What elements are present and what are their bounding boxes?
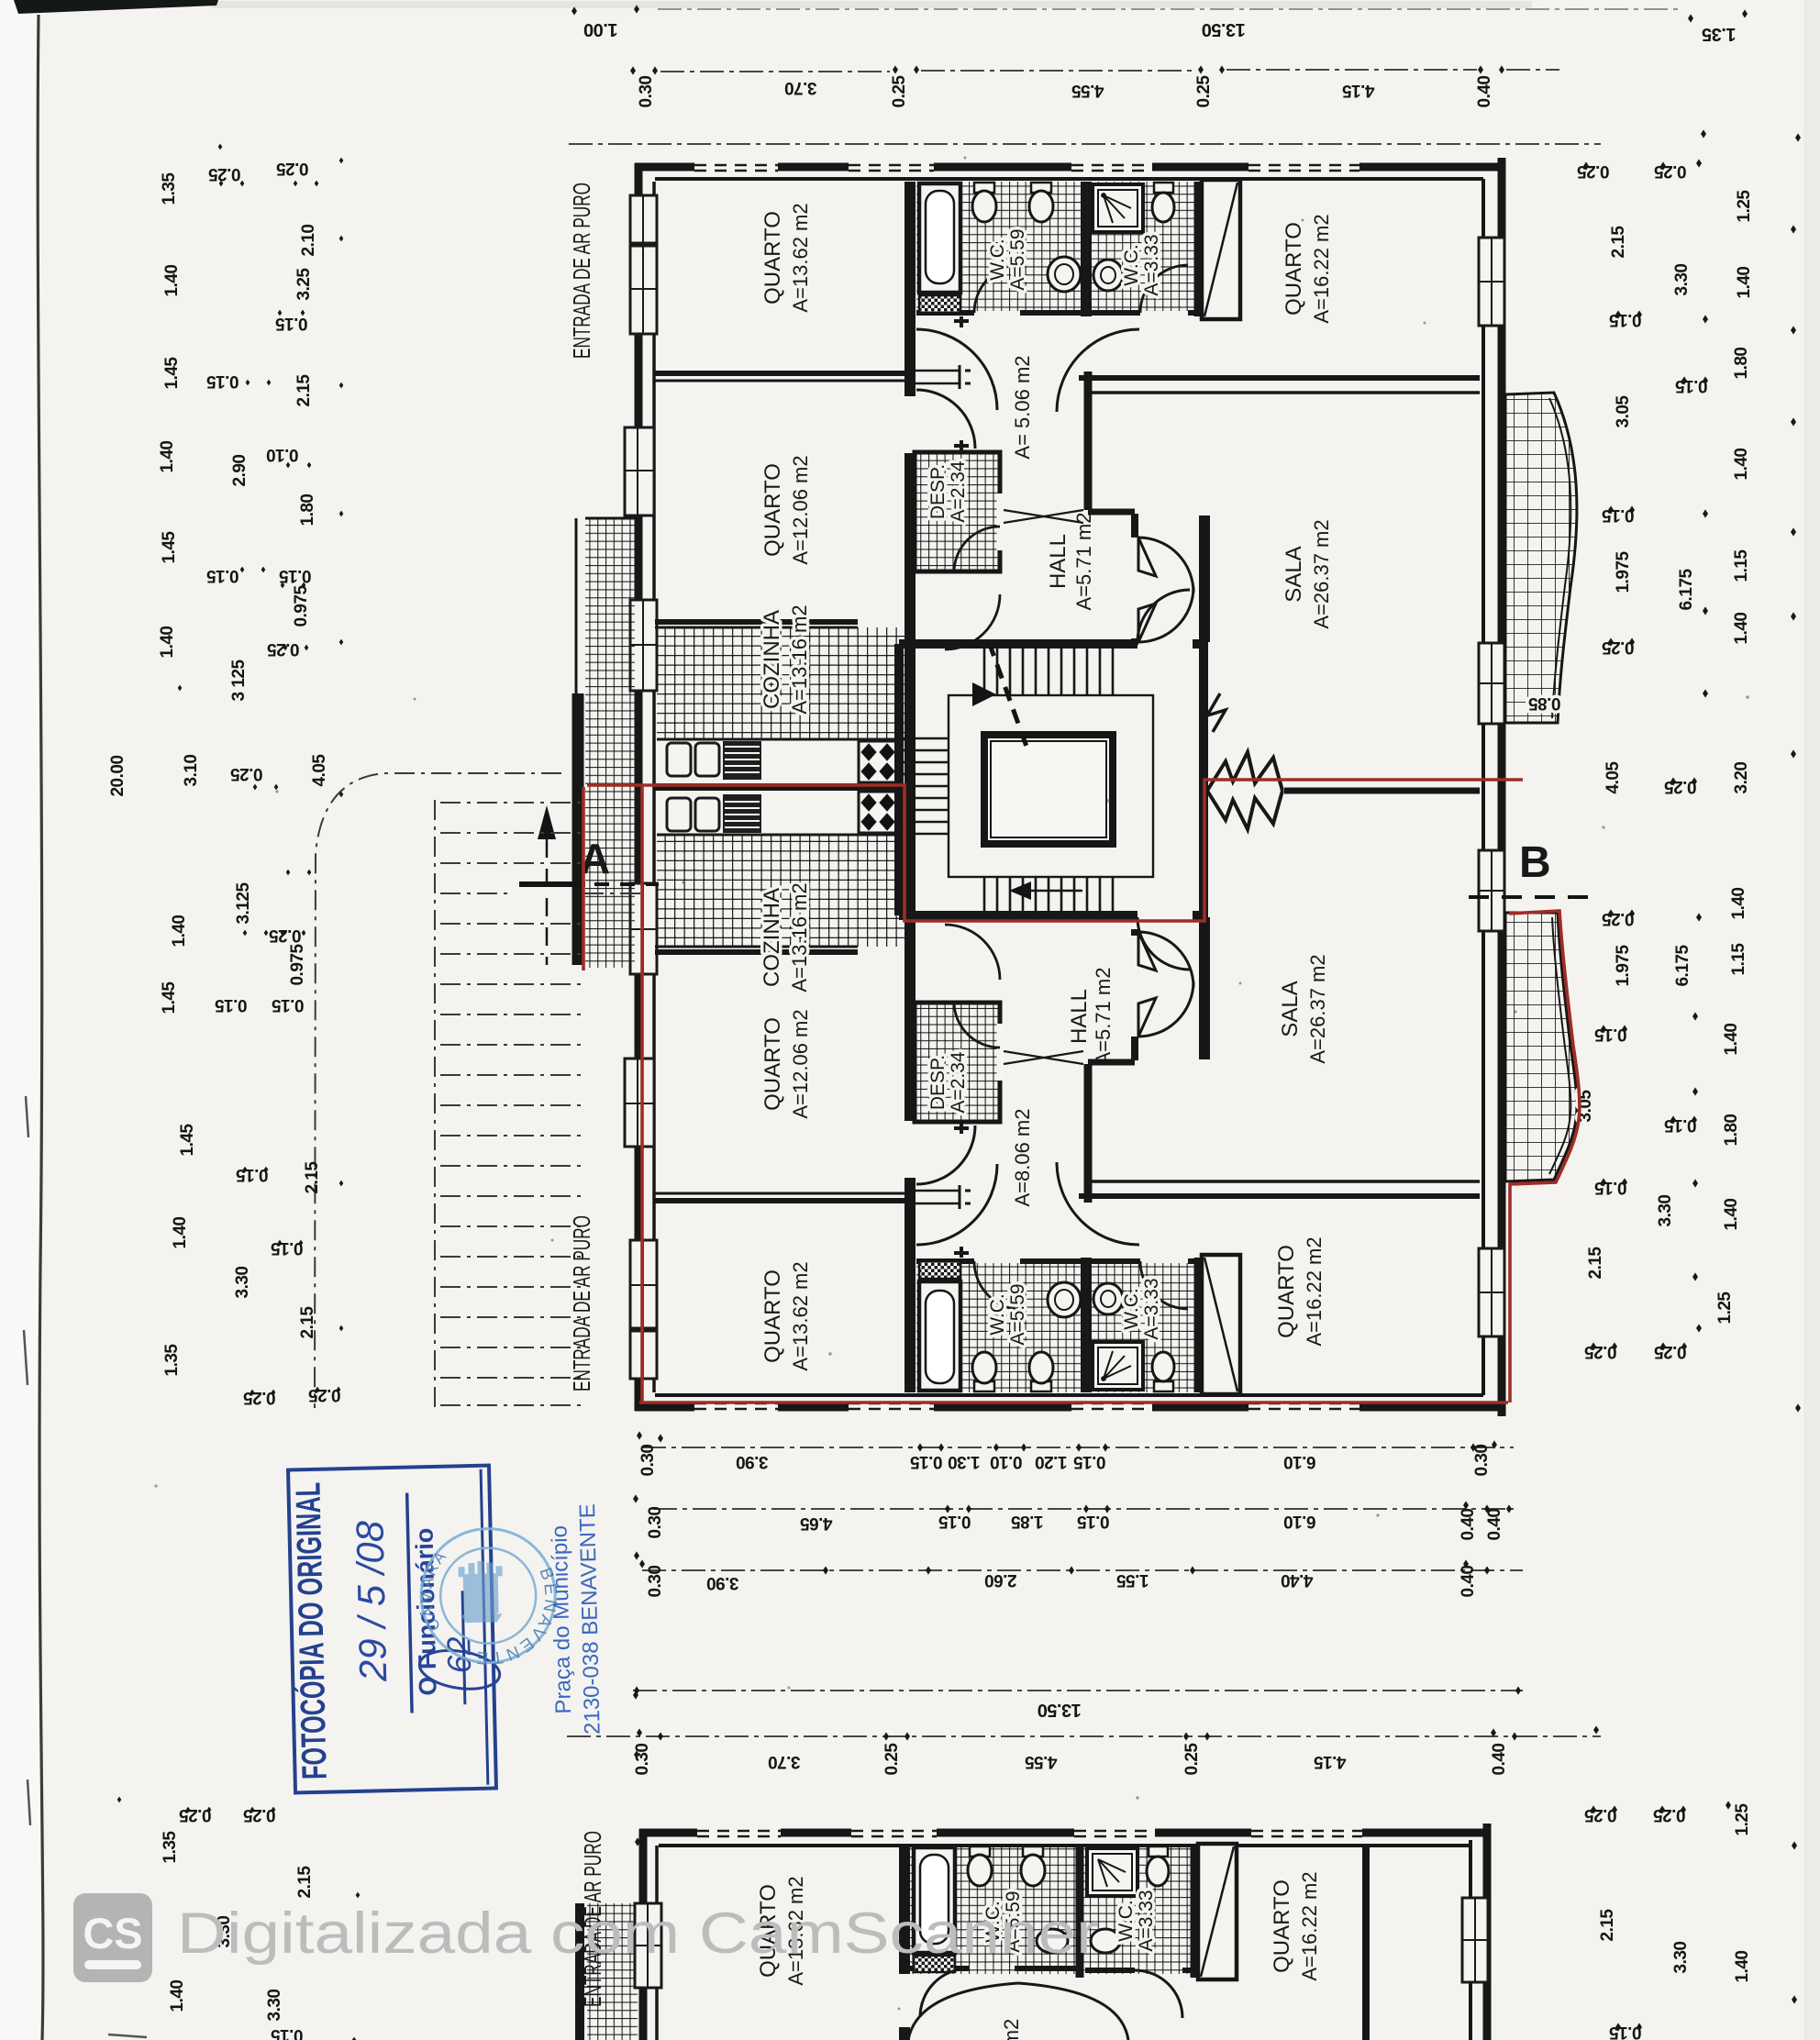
svg-text:Digitalizada com CamScanner: Digitalizada com CamScanner (177, 1901, 1099, 1966)
svg-text:0.15: 0.15 (272, 995, 305, 1014)
svg-text:3.125: 3.125 (234, 882, 253, 925)
svg-text:1.45: 1.45 (160, 531, 179, 564)
svg-text:1.35: 1.35 (162, 1344, 182, 1377)
svg-text:2.90: 2.90 (230, 455, 250, 487)
svg-text:QUARTO: QUARTO (1270, 1879, 1294, 1973)
svg-text:0.15: 0.15 (1594, 1178, 1627, 1197)
svg-text:1.40: 1.40 (171, 1217, 190, 1249)
svg-text:1.40: 1.40 (1733, 1951, 1752, 1983)
svg-text:SALA: SALA (1278, 981, 1303, 1037)
svg-text:1.40: 1.40 (1732, 449, 1751, 481)
svg-text:0.25: 0.25 (1182, 1743, 1202, 1776)
svg-text:A=26.37 m2: A=26.37 m2 (1306, 954, 1329, 1063)
svg-text:3.30: 3.30 (233, 1267, 252, 1299)
svg-text:0.15: 0.15 (1609, 2023, 1642, 2040)
svg-text:1.45: 1.45 (160, 981, 179, 1014)
svg-text:1.975: 1.975 (1614, 945, 1633, 987)
svg-text:0.15: 0.15 (215, 995, 248, 1014)
svg-text:0.15: 0.15 (236, 1165, 269, 1184)
svg-text:0.85: 0.85 (1528, 693, 1561, 713)
svg-text:1.35: 1.35 (1702, 24, 1736, 44)
svg-text:0.15: 0.15 (1073, 1452, 1106, 1471)
svg-text:1.20: 1.20 (1036, 1452, 1068, 1471)
svg-text:4.15: 4.15 (1342, 81, 1375, 100)
svg-text:1.80: 1.80 (298, 494, 317, 527)
svg-text:3.30: 3.30 (1656, 1195, 1675, 1227)
svg-text:2130-038 BENAVENTE: 2130-038 BENAVENTE (575, 1503, 605, 1735)
svg-text:0.25: 0.25 (1602, 637, 1635, 657)
svg-text:CS: CS (83, 1909, 142, 1957)
svg-text:13.50: 13.50 (1202, 19, 1246, 39)
svg-text:2.10: 2.10 (299, 225, 318, 257)
svg-text:2.15: 2.15 (298, 1306, 317, 1339)
svg-text:0.40: 0.40 (1459, 1566, 1478, 1598)
svg-text:1.40: 1.40 (1735, 267, 1754, 299)
svg-text:6.175: 6.175 (1677, 569, 1696, 611)
svg-text:QUARTO: QUARTO (1274, 1245, 1299, 1338)
svg-text:1.30: 1.30 (949, 1452, 981, 1471)
svg-text:A=16.22 m2: A=16.22 m2 (1303, 1236, 1326, 1346)
svg-text:A=5.71 m2: A=5.71 m2 (1072, 512, 1095, 610)
svg-text:0.25: 0.25 (267, 639, 300, 659)
svg-text:0.15: 0.15 (938, 1512, 971, 1531)
svg-text:QUARTO: QUARTO (760, 1017, 785, 1111)
svg-text:1.15: 1.15 (1732, 549, 1751, 582)
svg-text:0.975: 0.975 (292, 585, 311, 627)
svg-text:1.35: 1.35 (161, 1831, 180, 1864)
svg-text:29 / 5 /08: 29 / 5 /08 (348, 1520, 394, 1683)
svg-text:0.25: 0.25 (1602, 909, 1635, 928)
svg-text:1.55: 1.55 (1116, 1570, 1149, 1590)
svg-text:1.40: 1.40 (168, 1980, 187, 2012)
svg-text:W.C.: W.C. (987, 1293, 1008, 1336)
svg-text:QUARTO: QUARTO (1282, 222, 1306, 316)
svg-text:0.10: 0.10 (991, 1452, 1023, 1471)
svg-text:1.40: 1.40 (158, 626, 177, 659)
svg-text:1.45: 1.45 (162, 357, 182, 390)
svg-text:1.15: 1.15 (1729, 943, 1748, 976)
svg-text:COZINHA: COZINHA (760, 888, 784, 987)
svg-text:A=5.59: A=5.59 (1007, 1283, 1028, 1345)
svg-text:3.90: 3.90 (707, 1573, 739, 1592)
svg-text:0.25: 0.25 (1194, 75, 1214, 108)
svg-text:ENTRADA DE AR PURO: ENTRADA DE AR PURO (568, 183, 595, 359)
svg-text:2.15: 2.15 (1598, 1909, 1617, 1942)
svg-text:1.25: 1.25 (1715, 1292, 1735, 1325)
svg-text:0.30: 0.30 (646, 1566, 665, 1598)
svg-text:0.25: 0.25 (179, 1805, 212, 1824)
svg-text:Praça do Município: Praça do Município (547, 1525, 576, 1714)
svg-text:0.15: 0.15 (1664, 1115, 1697, 1135)
svg-text:3 125: 3 125 (229, 660, 249, 702)
svg-text:3.25: 3.25 (294, 268, 314, 301)
svg-text:4.55: 4.55 (1071, 81, 1104, 100)
svg-text:0.30: 0.30 (1472, 1445, 1492, 1477)
svg-text:0.25: 0.25 (1664, 777, 1697, 796)
svg-text:0.25: 0.25 (243, 1388, 276, 1407)
svg-text:0.30: 0.30 (637, 76, 656, 108)
svg-text:0.15: 0.15 (1609, 310, 1642, 329)
svg-text:6.175: 6.175 (1673, 945, 1692, 987)
svg-text:0.40: 0.40 (1485, 1509, 1504, 1541)
svg-text:0.30: 0.30 (646, 1507, 665, 1539)
svg-text:0.15: 0.15 (279, 566, 312, 585)
svg-text:4.05: 4.05 (310, 754, 329, 787)
svg-text:A=16.22 m2: A=16.22 m2 (1298, 1871, 1321, 1980)
svg-text:0.25: 0.25 (882, 1743, 902, 1776)
svg-text:3.90: 3.90 (737, 1452, 769, 1471)
svg-text:3.30: 3.30 (1672, 264, 1692, 296)
svg-text:0.975: 0.975 (288, 944, 307, 986)
svg-text:1.80: 1.80 (1722, 1114, 1741, 1147)
svg-text:0.25: 0.25 (230, 764, 263, 783)
svg-text:A=8.06 m2: A=8.06 m2 (1011, 1108, 1034, 1206)
svg-text:A=13.16 m2: A=13.16 m2 (788, 604, 811, 714)
svg-text:3.20: 3.20 (1732, 762, 1751, 794)
svg-text:A=13.62 m2: A=13.62 m2 (789, 1261, 812, 1370)
svg-text:1.45: 1.45 (178, 1124, 197, 1157)
svg-text:1.975: 1.975 (1614, 551, 1633, 593)
svg-text:0.15: 0.15 (206, 371, 239, 391)
svg-text:1.40: 1.40 (170, 915, 189, 948)
svg-text:4.15: 4.15 (1314, 1752, 1347, 1771)
svg-text:W.C.: W.C. (1115, 1900, 1137, 1942)
svg-text:A=12.06 m2: A=12.06 m2 (789, 1009, 812, 1118)
svg-text:0.25: 0.25 (276, 159, 309, 178)
svg-text:1.40: 1.40 (1729, 888, 1748, 920)
svg-text:m2: m2 (1000, 2019, 1023, 2040)
svg-text:0.15: 0.15 (275, 314, 308, 333)
svg-text:0.15: 0.15 (271, 2025, 304, 2040)
svg-text:A=3.33: A=3.33 (1136, 1890, 1157, 1951)
svg-text:A=5.71 m2: A=5.71 m2 (1092, 967, 1115, 1065)
svg-text:1.40: 1.40 (162, 265, 182, 297)
svg-text:2.60: 2.60 (985, 1570, 1017, 1590)
svg-text:QUARTO: QUARTO (760, 463, 785, 557)
svg-text:0.15: 0.15 (1675, 376, 1708, 395)
svg-text:0.30: 0.30 (638, 1445, 658, 1477)
svg-text:0.25: 0.25 (1653, 1805, 1686, 1824)
svg-text:0.15: 0.15 (271, 1238, 304, 1258)
svg-text:A=5.59: A=5.59 (1007, 228, 1028, 290)
svg-text:3.30: 3.30 (1671, 1942, 1691, 1974)
svg-text:3.70: 3.70 (785, 78, 817, 97)
svg-text:1.25: 1.25 (1735, 190, 1754, 223)
svg-text:3.30: 3.30 (265, 1990, 284, 2022)
svg-text:DESP.: DESP. (927, 464, 949, 519)
svg-text:0.25: 0.25 (1584, 1805, 1617, 1824)
svg-text:6.10: 6.10 (1284, 1452, 1316, 1471)
svg-text:0.25: 0.25 (1654, 161, 1687, 181)
svg-text:A=2.34: A=2.34 (948, 1051, 969, 1113)
svg-text:1.00: 1.00 (583, 19, 617, 39)
svg-text:A=13.62 m2: A=13.62 m2 (789, 203, 812, 312)
svg-text:1.40: 1.40 (1732, 613, 1751, 645)
svg-text:0.40: 0.40 (1475, 76, 1494, 108)
svg-text:0.25: 0.25 (208, 164, 241, 183)
svg-text:1.80: 1.80 (1732, 348, 1751, 380)
svg-text:QUARTO: QUARTO (760, 1269, 785, 1363)
svg-text:1.40: 1.40 (158, 441, 177, 473)
svg-text:1.25: 1.25 (1733, 1803, 1752, 1836)
svg-text:2.15: 2.15 (1609, 226, 1628, 259)
svg-text:QUARTO: QUARTO (760, 211, 785, 305)
svg-text:0.15: 0.15 (206, 566, 239, 585)
svg-text:2.15: 2.15 (295, 1866, 315, 1899)
svg-text:1.85: 1.85 (1011, 1512, 1044, 1531)
svg-text:0.15: 0.15 (1602, 505, 1635, 525)
svg-text:A=13.16 m2: A=13.16 m2 (788, 882, 811, 992)
svg-text:0.25: 0.25 (308, 1385, 341, 1404)
svg-text:0.25: 0.25 (243, 1805, 276, 1824)
svg-text:1.35: 1.35 (160, 172, 179, 205)
svg-text:6.10: 6.10 (1284, 1512, 1316, 1531)
svg-text:0.25: 0.25 (1577, 161, 1610, 181)
svg-text:A=12.06 m2: A=12.06 m2 (789, 455, 812, 564)
svg-text:SALA: SALA (1282, 546, 1306, 602)
svg-text:4.65: 4.65 (800, 1513, 833, 1533)
svg-text:W.C.: W.C. (987, 238, 1008, 281)
svg-text:0.15: 0.15 (1594, 1025, 1627, 1044)
svg-text:A=16.22 m2: A=16.22 m2 (1310, 214, 1333, 323)
svg-text:0.10: 0.10 (267, 445, 299, 464)
svg-text:A=2.34: A=2.34 (948, 460, 969, 522)
svg-text:0.15: 0.15 (1077, 1512, 1110, 1531)
svg-text:A=3.33: A=3.33 (1141, 234, 1162, 295)
svg-text:0.15: 0.15 (910, 1452, 943, 1471)
svg-text:2.15: 2.15 (303, 1161, 322, 1194)
svg-text:0.40: 0.40 (1459, 1509, 1478, 1541)
svg-text:0.30: 0.30 (633, 1744, 652, 1776)
svg-text:A=26.37 m2: A=26.37 m2 (1310, 519, 1333, 628)
svg-text:COZINHA: COZINHA (760, 610, 784, 709)
svg-text:A=3.33: A=3.33 (1141, 1278, 1162, 1339)
svg-text:W.C.: W.C. (1121, 1288, 1142, 1330)
svg-text:HALL: HALL (1067, 989, 1092, 1044)
svg-text:1.40: 1.40 (1722, 1199, 1741, 1231)
svg-text:0.25: 0.25 (269, 926, 302, 945)
svg-text:DESP.: DESP. (927, 1055, 949, 1110)
svg-text:3.05: 3.05 (1614, 395, 1633, 428)
svg-text:4.55: 4.55 (1025, 1752, 1058, 1771)
svg-text:0.25: 0.25 (1654, 1342, 1687, 1361)
svg-text:FOTOCÓPIA DO ORIGINAL: FOTOCÓPIA DO ORIGINAL (287, 1482, 334, 1780)
svg-text:3.10: 3.10 (182, 755, 201, 787)
svg-text:20.00: 20.00 (108, 755, 128, 796)
svg-text:1.40: 1.40 (1722, 1024, 1741, 1056)
svg-text:4.05: 4.05 (1604, 761, 1623, 794)
svg-text:0.25: 0.25 (890, 75, 909, 108)
svg-text:0.25: 0.25 (1584, 1342, 1617, 1361)
svg-text:0.40: 0.40 (1490, 1744, 1509, 1776)
svg-text:W.C.: W.C. (1121, 244, 1142, 286)
svg-text:4.40: 4.40 (1282, 1570, 1314, 1590)
svg-text:A= 5.06 m2: A= 5.06 m2 (1011, 355, 1034, 459)
svg-text:B: B (1519, 838, 1551, 887)
svg-text:2.15: 2.15 (1586, 1247, 1605, 1280)
svg-text:13.50: 13.50 (1038, 1700, 1082, 1720)
svg-text:2.15: 2.15 (294, 374, 314, 407)
svg-text:3.70: 3.70 (769, 1752, 801, 1771)
svg-text:ENTRADA DE AR PURO: ENTRADA DE AR PURO (568, 1215, 595, 1391)
svg-text:HALL: HALL (1046, 534, 1071, 589)
